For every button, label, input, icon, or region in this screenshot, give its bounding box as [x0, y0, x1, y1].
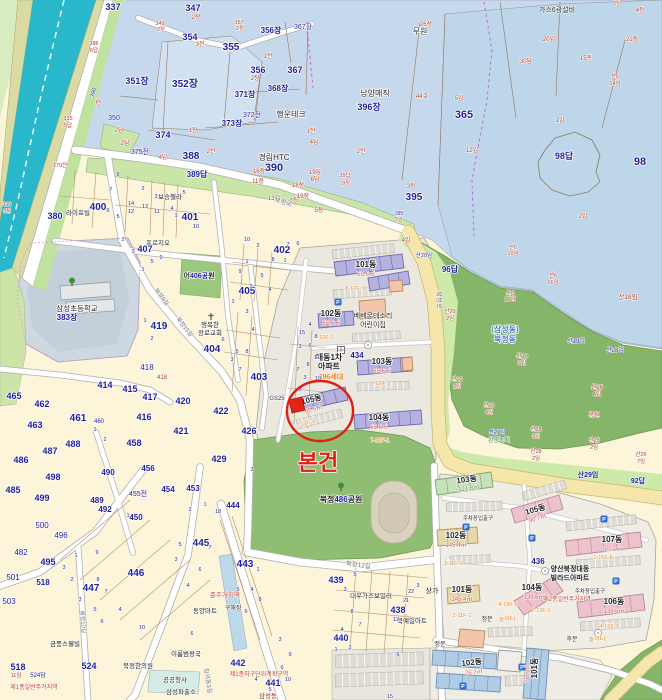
map-label: 351장 — [125, 75, 149, 86]
map-label: 490 — [101, 468, 115, 477]
map-label: 준주거지역 — [210, 590, 240, 599]
map-label: 401 — [182, 212, 199, 223]
lot-number: 1 — [93, 427, 96, 433]
parking-stripes-5 — [446, 501, 502, 512]
lot-number: 5 — [150, 259, 153, 265]
map-label: 30답 — [520, 58, 533, 65]
map-label: 산26 — [591, 383, 604, 391]
map-label: 390 — [265, 162, 283, 174]
map-label: 422 — [213, 406, 228, 416]
lot-number: 3 — [303, 375, 306, 381]
map-label: 2전 — [357, 147, 366, 155]
map-label: 산18임 — [618, 292, 637, 301]
playground-icon — [544, 570, 546, 572]
map-label: 104동 — [369, 413, 390, 422]
lot-number: 1 — [334, 647, 337, 653]
map-label: 1-15F-8 — [593, 555, 612, 561]
map-label: 7-12F-1 — [370, 381, 389, 387]
lot-number: 22 — [408, 589, 414, 595]
map-label: 19장 — [297, 192, 310, 200]
lot-number: 3 — [245, 309, 248, 315]
map-label: 무원 — [413, 27, 428, 36]
map-label: 8-12F-1 — [345, 286, 364, 292]
playground-icon — [367, 344, 369, 346]
lot-number: 3 — [416, 583, 419, 589]
map-label: 라이프빌 — [66, 208, 90, 217]
map-label: 350 — [108, 115, 120, 122]
map-label: 487 — [42, 446, 57, 456]
map-label: 산6 — [611, 72, 619, 80]
map-label: 5임 — [613, 0, 621, 7]
map-label: 2-13F-1 — [531, 608, 550, 614]
map-label: 북예일아트 — [397, 616, 427, 625]
map-label: 산6 — [509, 243, 517, 251]
lot-number: 15 — [299, 330, 305, 336]
map-label: 7-12F-1 — [370, 438, 389, 444]
track-inner — [379, 493, 409, 533]
map-label: 347 — [185, 3, 200, 13]
map-label: 5임 — [455, 94, 464, 102]
lot-number: 5 — [353, 572, 356, 578]
lot-number: 7 — [238, 367, 241, 373]
map-label: 400 — [90, 202, 107, 213]
map-label: 주차장입출구 — [575, 587, 605, 595]
lot-number: 5 — [260, 273, 263, 279]
map-label: 4-15F-1 — [599, 624, 618, 630]
map-label: 주차장입출구 — [463, 514, 493, 522]
lot-number: 7 — [296, 367, 299, 373]
map-label: (삼성동) — [491, 324, 519, 334]
lot-number: 1 — [231, 299, 234, 305]
map-label: 2전 — [207, 147, 216, 155]
map-label: 산26 — [635, 450, 646, 458]
map-label: 395 — [406, 192, 423, 203]
map-label: 463 — [27, 420, 42, 430]
map-label: 450 — [129, 513, 143, 522]
lot-number: 12 — [393, 617, 399, 623]
map-label: 418 — [140, 363, 154, 372]
map-label: 북정한의원 — [123, 661, 153, 670]
lot-number: 3 — [154, 194, 157, 200]
map-label: 426 — [241, 426, 256, 436]
map-label: 금풍스웰빌 — [50, 639, 80, 648]
map-label: 365 — [455, 109, 473, 121]
map-label: 354 — [182, 32, 197, 42]
map-label: 2-11F-1 — [453, 613, 472, 619]
map-label: 103동 — [372, 357, 393, 366]
map-label: 1임 — [556, 116, 565, 124]
map-label: 삼성초등학교 — [56, 303, 97, 313]
map-label: 베베몬테소리 — [354, 311, 393, 320]
playground-icon — [597, 632, 599, 634]
map-label: 518 — [10, 662, 25, 672]
map-label: 이롬범왕국 — [171, 649, 201, 658]
lot-number: 4 — [251, 327, 254, 333]
lot-number: 7 — [109, 187, 112, 193]
parking-icon-letter: P — [614, 579, 618, 585]
map-label: 446 — [128, 568, 145, 579]
map-label: 403 — [251, 372, 268, 383]
parking-stripes-13 — [335, 671, 423, 687]
lot-number: 8 — [271, 257, 274, 263]
lot-number: 8 — [306, 362, 309, 368]
map-label: 16임 — [547, 278, 558, 286]
map-label: 15동 — [580, 55, 593, 62]
map-label: 2장 — [236, 25, 244, 32]
map-label: 행복한 — [201, 320, 219, 329]
map-label: 442 — [230, 658, 245, 668]
lot-number: 1 — [256, 567, 259, 573]
map-label: 4답 — [310, 139, 319, 146]
lot-number: 9 — [95, 550, 98, 556]
map-label: 산28 — [530, 425, 541, 433]
map-label: 102동 — [321, 309, 342, 318]
lot-number: 9 — [238, 269, 241, 275]
lot-number: 6 — [280, 665, 283, 671]
parking-icon-letter: P — [461, 684, 465, 690]
map-label: 355 — [223, 42, 240, 53]
lot-number: 2 — [150, 336, 153, 342]
map-label: 산27임 — [489, 428, 505, 436]
lot-number: 13 — [142, 204, 148, 210]
map-label: 462 — [34, 399, 49, 409]
map-label: 92답 — [631, 476, 646, 485]
map-label: 10임 — [507, 249, 518, 257]
map-label: 구해정 — [225, 604, 242, 612]
map-label: 6답 — [311, 176, 320, 183]
map-label: 39답 — [339, 172, 350, 179]
map-label: 419 — [151, 321, 168, 332]
map-label: 2임 — [453, 382, 461, 390]
map-label: 공공청사 — [163, 675, 187, 684]
lot-number: 6 — [308, 343, 311, 349]
lot-number: 2 — [103, 437, 106, 443]
map-label: 대우가스보일러 — [350, 591, 392, 600]
lot-number: 10 — [285, 677, 291, 683]
lot-number: 7 — [286, 242, 289, 248]
map-label: 3전 — [196, 40, 205, 48]
map-label: 삼성파출소 — [166, 687, 196, 696]
lot-number: 15 — [387, 694, 393, 700]
map-label: 145.4㎡ — [451, 595, 472, 603]
map-label: 485 — [5, 485, 20, 495]
map-label: 20임 — [543, 35, 555, 43]
map-label: 440 — [333, 633, 348, 643]
map-label: 2임 — [579, 212, 588, 220]
lot-number: 2 — [256, 243, 259, 249]
lot-number: 5 — [268, 687, 271, 693]
map-label: 산6 — [506, 289, 514, 297]
map-label: 101동 — [452, 585, 473, 594]
map-label: 396세대 — [319, 372, 344, 381]
map-label: 산19 — [516, 352, 529, 360]
map-label: 2답 — [121, 140, 130, 147]
map-label: 447 — [83, 583, 100, 594]
lot-number: 8 — [350, 609, 353, 615]
map-label: 2임 — [590, 443, 598, 451]
map-label: 454 — [161, 485, 175, 494]
map-label: 386 — [89, 41, 98, 47]
map-label: 106동 — [604, 597, 625, 606]
map-canvas[interactable]: PPPPPPP3373472장3543전355356장3572장367장1전35… — [0, 0, 662, 700]
map-label: 65.6㎡ — [322, 319, 340, 327]
lot-number: 3 — [62, 565, 65, 571]
lot-number: 7 — [104, 589, 107, 595]
lot-number: 11 — [314, 355, 320, 361]
map-label: 416 — [136, 412, 151, 422]
map-label: 놀이터 — [499, 615, 516, 623]
map-label: 101동 — [530, 657, 539, 678]
map-label: 4-13F-8 — [498, 602, 517, 608]
map-label: 5임 — [395, 216, 402, 223]
map-label: 가스6광설비 — [539, 5, 575, 14]
map-label: 산28임 — [606, 346, 624, 354]
map-label: 65.6㎡ — [373, 367, 391, 375]
map-label: 383장 — [57, 312, 78, 322]
map-label: 503 — [2, 597, 16, 606]
map-label: 429 — [211, 454, 226, 464]
small-bldg-2 — [402, 357, 413, 371]
map-label: 455전 — [129, 489, 147, 498]
map-label: 보승첼라 — [158, 192, 182, 201]
map-label: 장로교회 — [198, 328, 222, 337]
map-label: 337 — [105, 2, 120, 12]
lot-number: 10 — [139, 625, 145, 631]
map-label: 415 — [122, 384, 137, 394]
map-label: 산6 — [549, 271, 557, 279]
map-label: 456 — [141, 464, 155, 473]
lot-number: 8 — [258, 597, 261, 603]
lot-number: 8 — [96, 577, 99, 583]
lot-number: 2 — [188, 507, 191, 513]
lot-number: 5 — [178, 542, 181, 548]
lot-number: 5 — [182, 190, 185, 196]
map-label: 북정동 — [494, 334, 517, 344]
map-label: 21장 — [626, 35, 639, 43]
map-label: 486 — [13, 455, 28, 465]
map-label: 동양마트 — [193, 606, 217, 615]
lot-number: 1 — [143, 318, 146, 324]
map-label: 산25 — [588, 436, 599, 444]
map-label: 공원 — [588, 411, 599, 419]
map-label: 빌라드아파트 — [551, 573, 590, 582]
c3-bldg-salmon — [458, 629, 485, 648]
map-label: 65.6㎡ — [357, 270, 375, 278]
lot-number: 3 — [278, 637, 281, 643]
map-label: 368장 — [268, 83, 289, 93]
map-label: 산19 — [451, 375, 462, 383]
lot-number: 4 — [308, 322, 311, 328]
map-label: 2임 — [446, 314, 454, 322]
map-label: 98답 — [555, 150, 574, 161]
map-label: 상가 — [426, 586, 439, 595]
map-label: 421 — [173, 426, 188, 436]
subject-label: 본건 — [298, 450, 338, 475]
lot-number: 2 — [348, 645, 351, 651]
lot-number: 10 — [244, 237, 250, 243]
map-label: 정문 — [481, 616, 493, 623]
lot-number: 5 — [236, 587, 239, 593]
lot-number: 21 — [403, 598, 409, 604]
map-label: 6답 — [90, 47, 98, 54]
map-label: 1전 — [264, 52, 273, 60]
map-label: 5답 — [64, 122, 72, 129]
lot-number: 6 — [190, 631, 193, 637]
lot-number: 2 — [121, 237, 124, 243]
map-label: 5장 — [315, 206, 324, 214]
map-label: 417 — [142, 392, 157, 402]
map-label: 4임 — [402, 236, 411, 244]
map-label: 443 — [237, 559, 254, 570]
map-label: 439 — [328, 575, 343, 585]
lot-number: 1 — [74, 553, 77, 559]
lot-number: 4 — [340, 627, 343, 633]
map-label: 414 — [97, 380, 112, 390]
map-label: 380 — [47, 211, 62, 221]
map-label: 3임 — [532, 432, 540, 440]
lot-number: 6 — [396, 652, 399, 658]
cadastral-map-viewport[interactable]: PPPPPPP3373472장3543전355356장3572장367장1전35… — [0, 0, 662, 700]
lot-number: 4 — [250, 587, 253, 593]
map-label: 9장 — [342, 180, 350, 187]
map-label: 107동 — [602, 535, 623, 544]
map-label: 산28 — [530, 447, 541, 455]
map-label: 389답 — [187, 169, 208, 179]
map-label: 3장 — [3, 208, 11, 215]
map-label: 407 — [137, 244, 152, 254]
map-label: 518 — [36, 578, 50, 587]
map-label: 356 — [250, 65, 265, 75]
lot-number: 3 — [230, 357, 233, 363]
lot-number: 3 — [174, 557, 177, 563]
map-label: 482 — [14, 548, 28, 557]
map-label: 11장 — [252, 177, 264, 185]
map-label: 375전 — [131, 147, 149, 156]
lot-number: 14 — [128, 201, 134, 207]
map-label: 17임 — [504, 295, 515, 303]
lot-number: 4 — [170, 206, 173, 212]
map-label: 356장 — [261, 25, 282, 35]
map-label: 145.4㎡ — [445, 541, 466, 549]
map-label: 11임 — [11, 671, 22, 679]
map-label: 96답 — [442, 264, 459, 274]
parking-stripes-12 — [335, 652, 423, 668]
map-label: 101동 — [356, 260, 377, 269]
lot-number: 2 — [70, 577, 73, 583]
lot-number: 7 — [358, 622, 361, 628]
map-label: 2임 — [532, 454, 540, 462]
map-label: 489 — [90, 496, 104, 505]
map-label: 418 — [157, 375, 168, 381]
map-label: GS25 — [269, 396, 285, 402]
map-label: 367 — [287, 65, 302, 75]
map-label: 90.7㎡ — [603, 545, 621, 553]
map-label: 4장 — [636, 6, 645, 14]
lot-number: 12 — [128, 209, 134, 215]
lot-number: 8 — [245, 349, 248, 355]
lot-number: 3 — [78, 597, 81, 603]
map-label: 제1종지구단위계획구역 — [230, 670, 289, 678]
map-label: 495 — [40, 557, 55, 567]
map-label: 놀이터 — [589, 635, 606, 643]
map-label: 444 — [226, 501, 240, 510]
lot-number: 6 — [106, 208, 109, 214]
map-label: 445 — [193, 538, 210, 549]
parking-stripes-10 — [488, 626, 532, 637]
map-label: 산29임 — [578, 470, 599, 479]
lot-number: 6 — [296, 241, 299, 247]
map-label: 3-11F-1 — [444, 561, 463, 567]
map-label: 405 — [239, 286, 256, 297]
map-label: 501 — [6, 573, 20, 582]
map-label: 4임 — [485, 408, 493, 416]
lot-number: 4 — [254, 677, 257, 683]
map-label: 500 — [35, 521, 49, 530]
lot-number: 4 — [186, 583, 189, 589]
map-label: 404 — [204, 344, 221, 355]
map-label: 436 — [531, 557, 545, 566]
map-label: 98 — [634, 156, 646, 168]
map-label: 179전 — [53, 161, 67, 169]
parking-icon-letter: P — [336, 300, 340, 306]
map-label: 524답 — [30, 672, 46, 679]
map-label-mixed: 어406공원 — [183, 271, 214, 280]
map-label: 458 — [126, 438, 141, 448]
map-label: 335 — [63, 116, 72, 122]
map-label: 후문 — [566, 635, 578, 643]
lot-number: 1 — [245, 259, 248, 265]
lot-number: 1 — [141, 267, 144, 273]
lot-number: 6 — [244, 609, 247, 615]
map-label: 양산북정대동 — [551, 564, 590, 573]
lot-number: 3 — [249, 284, 252, 290]
map-label: 65.6㎡ — [370, 423, 388, 431]
map-label: 438 — [390, 605, 405, 615]
lot-number: 3 — [250, 467, 253, 473]
map-label: 3장 — [407, 182, 416, 190]
lot-number: 1 — [283, 258, 286, 264]
map-label: 산19 — [483, 401, 494, 409]
map-label: 산20임 — [416, 251, 432, 259]
map-label: 524 — [81, 661, 96, 671]
map-label: 465 — [6, 391, 21, 401]
map-label: 374 — [155, 130, 170, 140]
map-label: 완충녹지 — [488, 436, 510, 444]
map-label: 2장 — [192, 13, 201, 21]
lot-number: 3 — [343, 587, 346, 593]
map-label: 373장 — [222, 118, 243, 128]
map-label: 16장 — [253, 167, 266, 175]
map-label: 아파트 — [318, 361, 341, 371]
map-label: 제1종일반주거지역 — [10, 683, 58, 691]
map-label: 461 — [70, 413, 87, 424]
map-label: 19답 — [309, 169, 322, 176]
tree-icon — [338, 483, 344, 489]
tree-icon — [69, 278, 75, 284]
map-label: 제2종일반주거지역 — [543, 595, 591, 603]
parking-icon-letter: P — [520, 665, 524, 671]
lot-number: 4 — [118, 607, 121, 613]
lot-number: 1 — [203, 502, 206, 508]
lot-number: 9 — [159, 255, 162, 261]
map-label-mixed: 북정486공원 — [320, 494, 363, 504]
map-label: 371장 — [235, 89, 256, 99]
map-label: 488 — [65, 439, 80, 449]
subject-unit-highlight — [289, 397, 305, 413]
map-label: 496 — [54, 531, 68, 540]
lot-number: 6 — [198, 567, 201, 573]
map-label: 313 — [2, 202, 11, 208]
